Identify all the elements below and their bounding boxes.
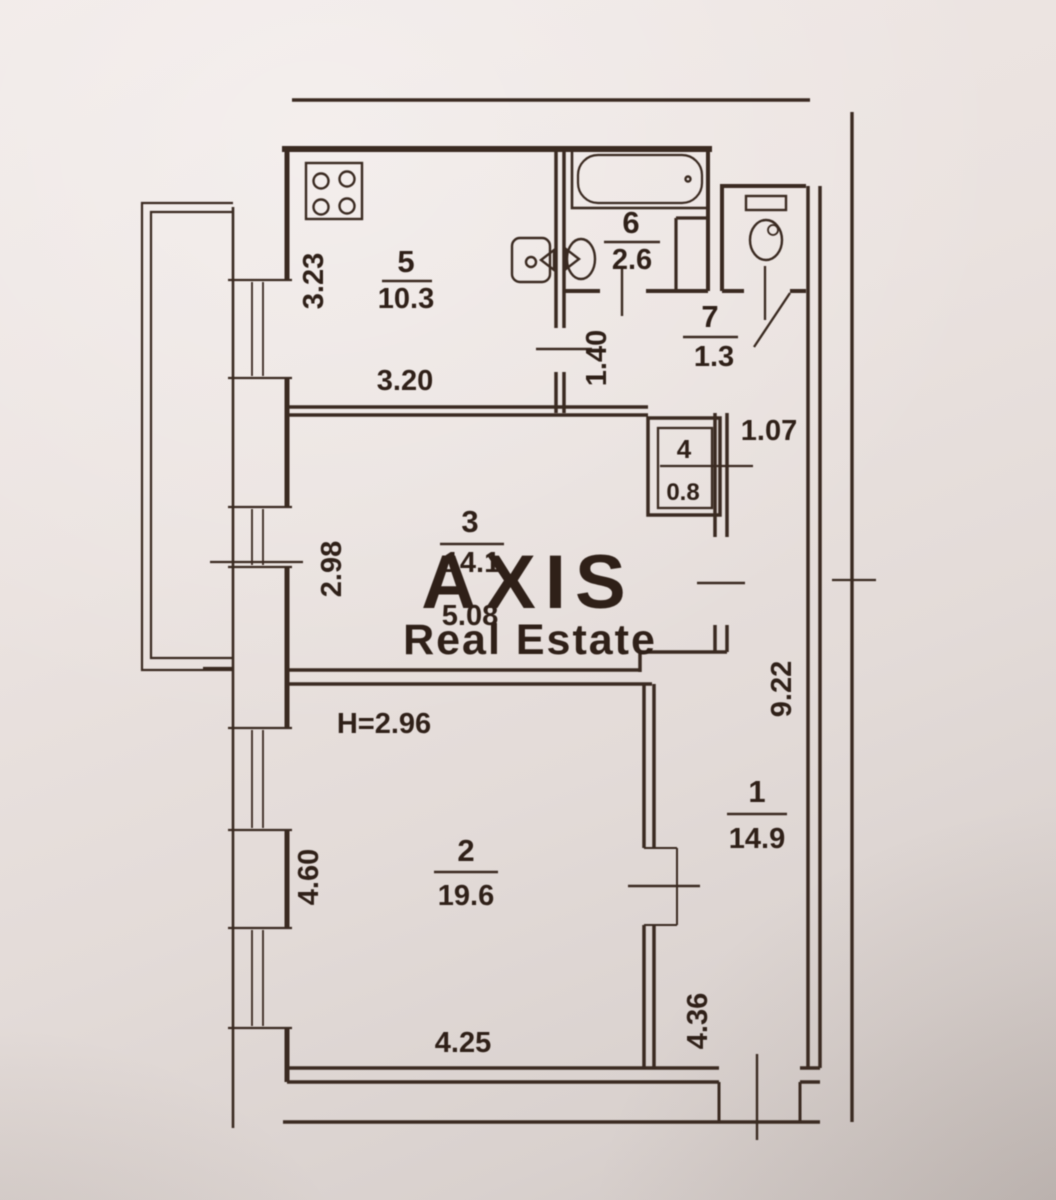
dim-room2-depth: 4.60 [293, 849, 325, 905]
window-caps [228, 280, 292, 1028]
entrance-passage [719, 1082, 800, 1122]
room-2-area: 19.6 [438, 880, 494, 912]
room-5-number: 5 [397, 244, 414, 279]
wall-room3-bottom [287, 670, 652, 684]
watermark-tagline: Real Estate [403, 616, 657, 664]
wall-kitchen-right [556, 149, 564, 413]
balcony-inner-line [151, 212, 233, 658]
room-6-area: 2.6 [612, 244, 652, 276]
room-4-label: 4 0.8 [666, 434, 699, 506]
watermark: AXIS Real Estate [403, 540, 657, 664]
dim-entry-length: 4.36 [682, 993, 714, 1049]
dim-room3-depth: 2.98 [316, 541, 348, 597]
room-4-number: 4 [677, 434, 692, 464]
left-exterior-wall [203, 146, 303, 1128]
dim-kitchen-depth: 3.23 [298, 253, 330, 309]
room-7-area: 1.3 [694, 341, 734, 373]
wall-right [808, 186, 820, 1068]
bathtub-icon [572, 150, 708, 208]
wall-kitchen-bottom [287, 407, 648, 415]
window-glazing-lines [252, 282, 263, 1026]
dim-hall-height: 1.40 [581, 330, 613, 386]
floorplan-drawing: 5 10.3 6 2.6 7 1.3 4 0.8 3 14.1 [0, 0, 1056, 1200]
kitchen-sink-icon [512, 238, 554, 282]
room-6-label: 6 2.6 [604, 205, 660, 276]
room-1-number: 1 [748, 774, 765, 809]
room-3-number: 3 [461, 504, 478, 539]
ceiling-height-note: H=2.96 [337, 708, 431, 740]
balcony-outline [142, 203, 233, 670]
room-2-number: 2 [457, 833, 474, 868]
toilet-door-leaf [754, 293, 790, 347]
balcony-outer-line [142, 203, 233, 670]
dim-room2-width: 4.25 [435, 1027, 491, 1059]
room-6-number: 6 [622, 205, 639, 240]
wall-bottom [287, 1068, 820, 1082]
room-7-label: 7 1.3 [683, 299, 738, 373]
room-5-label: 5 10.3 [378, 244, 434, 315]
wall-room2-right [644, 684, 654, 1068]
watermark-brand: AXIS [421, 540, 634, 625]
room-4-area: 0.8 [666, 479, 699, 506]
toilet-icon [746, 196, 786, 260]
room-7-number: 7 [701, 299, 718, 334]
room-1-area: 14.9 [729, 823, 785, 855]
wall-bathroom-shaft [676, 218, 708, 291]
dim-kitchen-width: 3.20 [377, 365, 433, 397]
bathroom-sink-icon [566, 239, 595, 279]
dim-corridor-length: 9.22 [766, 661, 798, 717]
stove-icon [306, 163, 362, 219]
dim-corridor-width: 1.07 [741, 415, 797, 447]
floorplan-photo: 5 10.3 6 2.6 7 1.3 4 0.8 3 14.1 [0, 0, 1056, 1200]
room-2-label: 2 19.6 [434, 833, 498, 912]
room-5-area: 10.3 [378, 283, 434, 315]
room-1-label: 1 14.9 [727, 774, 787, 855]
fixtures [306, 150, 786, 282]
